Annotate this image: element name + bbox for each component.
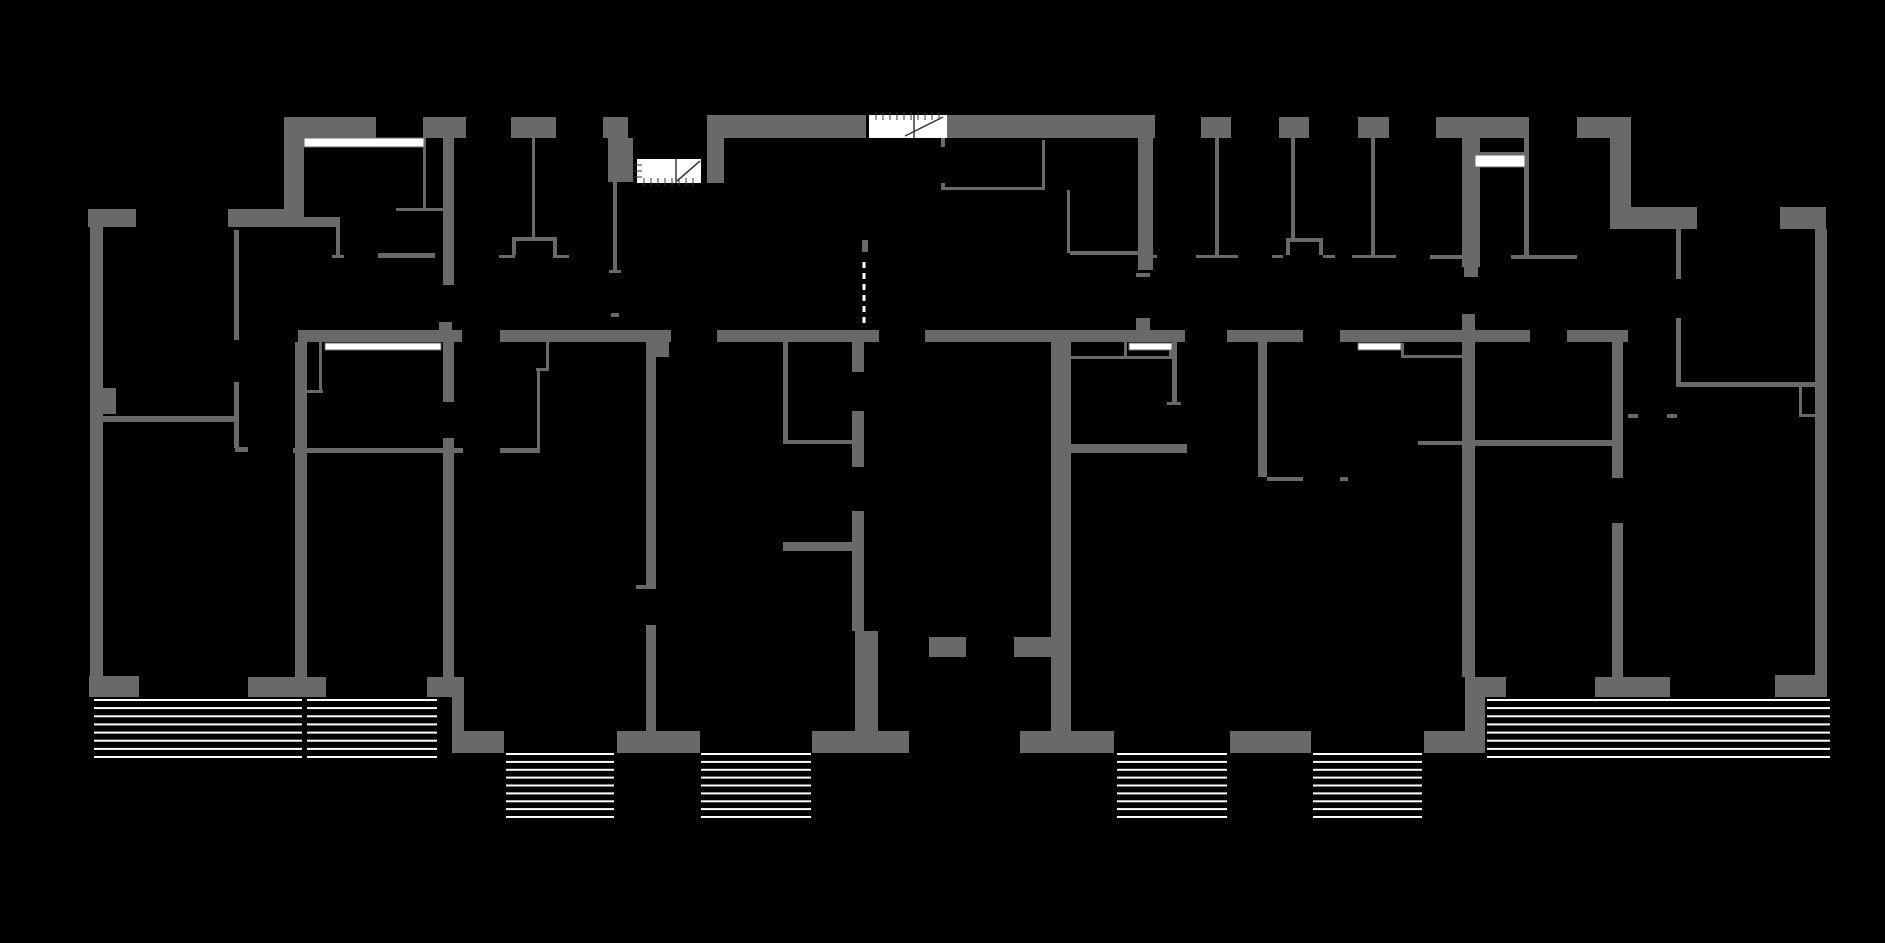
floor-plan-svg: [0, 0, 1885, 943]
partition-wall: [613, 182, 617, 273]
wall: [228, 209, 304, 227]
balcony-tread-line: [701, 785, 811, 787]
partition-wall: [293, 448, 463, 453]
balcony-hatch: [506, 753, 614, 818]
balcony-tread-line: [506, 777, 614, 779]
balcony-tread-line: [1313, 792, 1422, 794]
partition-wall: [1136, 273, 1150, 277]
partition-wall: [862, 240, 868, 252]
balcony-tread-line: [1487, 732, 1830, 734]
wall: [1775, 675, 1827, 697]
window: [1475, 155, 1525, 167]
balcony-tread-line: [701, 800, 811, 802]
wall: [1612, 523, 1623, 677]
balcony-tread-line: [506, 808, 614, 810]
balcony-tread-line: [1313, 816, 1422, 818]
balcony-tread-line: [701, 777, 811, 779]
wall: [852, 511, 864, 631]
partition-wall: [1286, 238, 1323, 242]
wall: [1201, 117, 1231, 138]
window: [1358, 343, 1401, 350]
wall: [608, 138, 633, 182]
wall: [304, 217, 340, 227]
wall: [1227, 330, 1303, 342]
wall: [1358, 117, 1389, 138]
wall: [603, 117, 628, 138]
wall: [439, 322, 452, 331]
balcony-tread-line: [1313, 753, 1422, 755]
partition-wall: [234, 382, 239, 448]
balcony-tread-line: [701, 816, 811, 818]
balcony-tread-line: [701, 808, 811, 810]
partition-wall: [1511, 255, 1577, 259]
balcony-tread-line: [1117, 761, 1227, 763]
balcony-tread-line: [307, 699, 437, 701]
wall: [1279, 117, 1309, 138]
balcony-tread-line: [506, 800, 614, 802]
wall: [707, 138, 724, 183]
balcony-tread-line: [1117, 785, 1227, 787]
balcony-tread-line: [506, 769, 614, 771]
wall: [1020, 731, 1114, 753]
wall: [248, 677, 326, 697]
balcony-tread-line: [1313, 808, 1422, 810]
balcony-hatch: [1313, 753, 1422, 818]
wall: [1610, 138, 1631, 211]
wall: [90, 227, 103, 676]
wall: [1051, 342, 1071, 731]
wall: [1462, 314, 1475, 677]
partition-wall: [1464, 259, 1478, 277]
balcony-tread-line: [506, 785, 614, 787]
partition-wall: [423, 138, 426, 208]
stair-run: [634, 159, 701, 186]
partition-wall: [941, 138, 945, 147]
wall: [88, 209, 136, 227]
partition-wall: [1215, 138, 1219, 255]
partition-wall: [537, 371, 540, 448]
wall: [1258, 341, 1267, 477]
wall: [443, 438, 454, 677]
balcony-tread-line: [1487, 756, 1830, 758]
balcony-tread-line: [307, 707, 437, 709]
balcony-tread-line: [701, 792, 811, 794]
partition-wall: [336, 227, 340, 257]
wall: [1567, 330, 1628, 342]
partition-wall: [1799, 414, 1815, 417]
wall: [103, 416, 237, 422]
partition-wall: [512, 237, 557, 241]
partition-wall: [1070, 356, 1172, 359]
balcony-tread-line: [94, 715, 302, 717]
partition-wall: [1148, 255, 1157, 258]
partition-wall: [532, 138, 535, 237]
balcony-tread-line: [1487, 740, 1830, 742]
balcony-tread-line: [94, 756, 302, 758]
wall: [783, 542, 859, 551]
balcony-tread-line: [307, 748, 437, 750]
wall: [1612, 342, 1623, 478]
partition-wall: [332, 255, 344, 258]
window: [325, 343, 441, 350]
wall: [929, 637, 966, 657]
partition-wall: [512, 241, 516, 255]
wall: [1577, 117, 1631, 138]
partition-wall: [1340, 477, 1348, 481]
partition-wall: [1286, 242, 1290, 255]
balcony-tread-line: [1313, 800, 1422, 802]
wall: [1678, 382, 1815, 387]
partition-wall: [1628, 414, 1638, 418]
partition-wall: [1667, 414, 1677, 418]
partition-wall: [1430, 255, 1480, 259]
wall: [717, 330, 879, 342]
balcony-tread-line: [1313, 785, 1422, 787]
balcony-tread-line: [94, 740, 302, 742]
floor-plan-canvas: [0, 0, 1885, 943]
partition-wall: [1272, 255, 1283, 258]
partition-wall: [1323, 255, 1335, 258]
partition-wall: [1799, 387, 1802, 417]
partition-wall: [378, 253, 435, 258]
wall: [1136, 318, 1150, 331]
balcony-tread-line: [701, 761, 811, 763]
wall: [89, 676, 139, 697]
partition-wall: [1124, 341, 1127, 358]
partition-wall: [1418, 441, 1464, 445]
wall: [942, 115, 1155, 138]
partition-wall: [1403, 355, 1464, 358]
partition-wall: [234, 230, 239, 340]
balcony-tread-line: [1117, 753, 1227, 755]
wall: [646, 341, 656, 587]
balcony-tread-line: [94, 732, 302, 734]
balcony-tread-line: [94, 748, 302, 750]
balcony-tread-line: [307, 740, 437, 742]
wall: [1424, 731, 1485, 753]
partition-wall: [611, 313, 619, 317]
partition-wall: [1676, 229, 1681, 279]
wall: [427, 677, 464, 697]
balcony-tread-line: [1117, 777, 1227, 779]
wall: [1067, 444, 1187, 453]
wall: [295, 342, 307, 677]
balcony-tread-line: [506, 753, 614, 755]
balcony-hatch: [701, 753, 811, 818]
partition-wall: [553, 241, 557, 255]
partition-wall: [1267, 477, 1303, 481]
balcony-tread-line: [307, 756, 437, 758]
balcony-tread-line: [1487, 723, 1830, 725]
partition-wall: [609, 270, 621, 273]
wall: [443, 138, 454, 285]
wall: [1815, 229, 1827, 697]
balcony-tread-line: [1487, 699, 1830, 701]
balcony-tread-line: [94, 723, 302, 725]
balcony-tread-line: [1117, 808, 1227, 810]
partition-wall: [235, 447, 248, 452]
partition-wall: [536, 368, 549, 371]
wall: [646, 625, 656, 731]
wall: [1595, 677, 1670, 697]
balcony-tread-line: [307, 732, 437, 734]
wall: [707, 115, 866, 138]
wall: [452, 697, 464, 731]
balcony-tread-line: [1313, 761, 1422, 763]
partition-wall: [783, 341, 788, 442]
window: [304, 138, 424, 147]
wall: [500, 330, 671, 342]
window: [1129, 343, 1172, 350]
balcony-tread-line: [1487, 715, 1830, 717]
balcony-tread-line: [506, 761, 614, 763]
balcony-tread-line: [701, 769, 811, 771]
wall: [298, 330, 462, 342]
partition-wall: [1167, 402, 1181, 405]
partition-wall: [1070, 251, 1138, 255]
wall: [617, 731, 700, 753]
wall: [1340, 330, 1530, 342]
balcony-tread-line: [506, 816, 614, 818]
balcony-tread-line: [1313, 777, 1422, 779]
balcony-tread-line: [307, 723, 437, 725]
wall: [511, 117, 556, 138]
balcony-tread-line: [1487, 707, 1830, 709]
wall: [656, 341, 669, 357]
wall: [1138, 138, 1153, 270]
partition-wall: [319, 342, 322, 392]
stair-landing: [637, 159, 701, 183]
partition-wall: [1196, 255, 1238, 258]
wall: [452, 731, 504, 753]
partition-wall: [553, 255, 569, 258]
partition-wall: [1676, 318, 1681, 387]
wall: [423, 117, 466, 138]
partition-wall: [783, 440, 859, 444]
wall: [852, 341, 864, 372]
partition-wall: [306, 390, 323, 393]
wall: [1462, 440, 1612, 446]
stair-run: [869, 112, 947, 138]
wall: [1610, 207, 1697, 229]
balcony-tread-line: [94, 699, 302, 701]
balcony-tread-line: [701, 753, 811, 755]
balcony-tread-line: [506, 792, 614, 794]
wall: [812, 731, 909, 753]
partition-wall: [500, 448, 540, 453]
balcony-tread-line: [307, 715, 437, 717]
wall: [1230, 731, 1311, 753]
partition-wall: [1172, 342, 1177, 402]
balcony-tread-line: [1313, 769, 1422, 771]
partition-wall: [1371, 138, 1375, 255]
balcony-tread-line: [1117, 816, 1227, 818]
wall: [443, 342, 454, 402]
partition-wall: [1291, 138, 1295, 238]
partition-wall: [499, 255, 515, 258]
wall: [284, 138, 304, 209]
wall: [1780, 207, 1826, 229]
wall: [852, 411, 864, 467]
wall: [855, 631, 878, 731]
balcony-tread-line: [1117, 769, 1227, 771]
wall: [925, 330, 1185, 342]
partition-wall: [1042, 140, 1045, 189]
balcony-tread-line: [1117, 792, 1227, 794]
partition-wall: [1352, 255, 1396, 258]
partition-wall: [546, 342, 549, 370]
partition-wall: [636, 585, 656, 589]
partition-wall: [1319, 242, 1323, 255]
partition-wall: [396, 208, 443, 211]
partition-wall: [1067, 190, 1070, 253]
wall: [1477, 677, 1506, 697]
partition-wall: [941, 187, 1045, 190]
wall: [1436, 117, 1529, 138]
balcony-tread-line: [94, 707, 302, 709]
balcony-tread-line: [1487, 748, 1830, 750]
balcony-tread-line: [1117, 800, 1227, 802]
wall: [284, 117, 376, 138]
balcony-hatch: [1117, 753, 1227, 818]
wall: [1014, 637, 1054, 657]
wall: [103, 388, 116, 414]
